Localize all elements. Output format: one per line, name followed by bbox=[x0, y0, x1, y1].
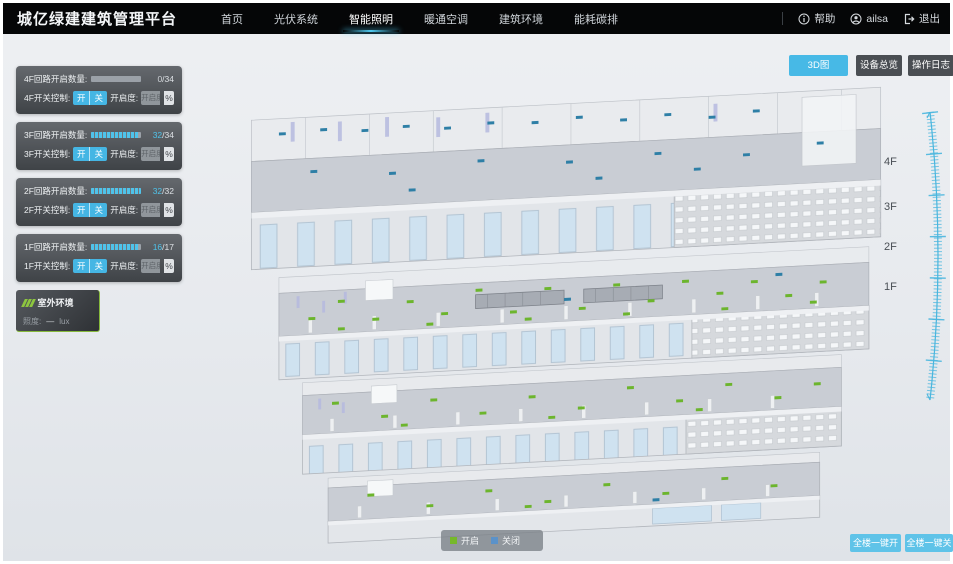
circuit-progress-bar bbox=[91, 244, 141, 250]
circuit-count-label: 4F回路开启数量: bbox=[24, 73, 87, 85]
lights-off-markers-1f bbox=[653, 498, 660, 501]
circuit-progress-bar bbox=[91, 132, 141, 138]
dim-level-label: 开启度: bbox=[110, 204, 138, 216]
switch-on-button[interactable]: 开 bbox=[73, 147, 90, 161]
user-name: ailsa bbox=[866, 13, 888, 25]
switch-group: 开 关 bbox=[73, 259, 107, 273]
logout-label: 退出 bbox=[919, 11, 940, 26]
circuit-progress-bar bbox=[91, 188, 141, 194]
circuit-count-value: 32/32 bbox=[153, 186, 174, 196]
logout-icon bbox=[903, 13, 915, 25]
user-menu[interactable]: ailsa bbox=[850, 13, 888, 25]
device-overview-button[interactable]: 设备总览 bbox=[856, 55, 902, 76]
help-label: 帮助 bbox=[814, 11, 835, 26]
legend-off-label: 关闭 bbox=[502, 534, 520, 547]
floor-4f-model[interactable] bbox=[251, 87, 880, 269]
switch-control-label: 4F开关控制: bbox=[24, 92, 70, 104]
switch-on-button[interactable]: 开 bbox=[73, 203, 90, 217]
help-button[interactable]: 帮助 bbox=[798, 11, 835, 26]
legend-on-item: 开启 bbox=[450, 534, 479, 547]
legend-off-swatch bbox=[491, 537, 498, 544]
percent-apply-button[interactable]: % bbox=[164, 91, 174, 105]
circuit-count-value: 32/34 bbox=[153, 130, 174, 140]
circuit-count-label: 1F回路开启数量: bbox=[24, 241, 87, 253]
nav-item-energy-carbon[interactable]: 能耗碳排 bbox=[572, 2, 620, 36]
legend-off-item: 关闭 bbox=[491, 534, 520, 547]
dim-level-input[interactable]: 开启度 bbox=[141, 259, 160, 273]
nav-item-smart-lighting[interactable]: 智能照明 bbox=[347, 2, 395, 36]
header-divider bbox=[782, 12, 783, 25]
floor-panel-3f: 3F回路开启数量: 32/34 3F开关控制: 开 关 开启度: 开启度 % bbox=[16, 122, 182, 170]
floor-scale-label-3f[interactable]: 3F bbox=[884, 201, 897, 213]
switch-off-button[interactable]: 关 bbox=[90, 203, 107, 217]
legend-on-label: 开启 bbox=[461, 534, 479, 547]
dim-level-label: 开启度: bbox=[110, 260, 138, 272]
percent-apply-button[interactable]: % bbox=[164, 147, 174, 161]
switch-on-button[interactable]: 开 bbox=[73, 91, 90, 105]
lighting-legend: 开启 关闭 bbox=[441, 530, 543, 551]
nav-item-building-env[interactable]: 建筑环境 bbox=[497, 2, 545, 36]
nav-item-hvac[interactable]: 暖通空调 bbox=[422, 2, 470, 36]
main-nav: 首页 光伏系统 智能照明 暖通空调 建筑环境 能耗碳排 bbox=[219, 2, 620, 36]
dim-level-label: 开启度: bbox=[110, 92, 138, 104]
nav-item-pv-system[interactable]: 光伏系统 bbox=[272, 2, 320, 36]
all-floors-off-button[interactable]: 全楼一键关 bbox=[905, 534, 953, 552]
switch-on-button[interactable]: 开 bbox=[73, 259, 90, 273]
switch-off-button[interactable]: 关 bbox=[90, 259, 107, 273]
green-slashes-icon bbox=[23, 299, 34, 307]
legend-on-swatch bbox=[450, 537, 457, 544]
floor-panel-4f: 4F回路开启数量: 0/34 4F开关控制: 开 关 开启度: 开启度 % bbox=[16, 66, 182, 114]
percent-apply-button[interactable]: % bbox=[164, 259, 174, 273]
floor-panel-1f: 1F回路开启数量: 16/17 1F开关控制: 开 关 开启度: 开启度 % bbox=[16, 234, 182, 282]
building-3d-model[interactable] bbox=[218, 75, 918, 545]
switch-control-label: 3F开关控制: bbox=[24, 148, 70, 160]
percent-apply-button[interactable]: % bbox=[164, 203, 174, 217]
illuminance-unit: lux bbox=[59, 317, 69, 326]
switch-control-label: 1F开关控制: bbox=[24, 260, 70, 272]
switch-off-button[interactable]: 关 bbox=[90, 91, 107, 105]
outdoor-env-title: 室外环境 bbox=[38, 296, 74, 309]
switch-group: 开 关 bbox=[73, 147, 107, 161]
circuit-progress-bar bbox=[91, 76, 141, 82]
floor-scale-label-4f[interactable]: 4F bbox=[884, 156, 897, 168]
user-circle-icon bbox=[850, 13, 862, 25]
floor-panel-2f: 2F回路开启数量: 32/32 2F开关控制: 开 关 开启度: 开启度 % bbox=[16, 178, 182, 226]
nav-item-home[interactable]: 首页 bbox=[219, 2, 245, 36]
dim-level-input[interactable]: 开启度 bbox=[141, 203, 160, 217]
circuit-count-label: 2F回路开启数量: bbox=[24, 185, 87, 197]
dim-level-input[interactable]: 开启度 bbox=[141, 147, 160, 161]
switch-control-label: 2F开关控制: bbox=[24, 204, 70, 216]
switch-off-button[interactable]: 关 bbox=[90, 147, 107, 161]
app-window: 城亿绿建建筑管理平台 首页 光伏系统 智能照明 暖通空调 建筑环境 能耗碳排 帮… bbox=[0, 0, 953, 564]
dim-level-input[interactable]: 开启度 bbox=[141, 91, 160, 105]
header-user-area: 帮助 ailsa 退出 bbox=[782, 11, 940, 26]
floor-zoom-scale[interactable] bbox=[906, 106, 953, 406]
floor-scale-label-2f[interactable]: 2F bbox=[884, 241, 897, 253]
all-floors-on-button[interactable]: 全楼一键开 bbox=[850, 534, 901, 552]
view-3d-button[interactable]: 3D图 bbox=[789, 55, 848, 76]
operation-log-button[interactable]: 操作日志 bbox=[908, 55, 953, 76]
app-title: 城亿绿建建筑管理平台 bbox=[17, 8, 177, 29]
circuit-count-value: 16/17 bbox=[153, 242, 174, 252]
switch-group: 开 关 bbox=[73, 203, 107, 217]
top-header: 城亿绿建建筑管理平台 首页 光伏系统 智能照明 暖通空调 建筑环境 能耗碳排 帮… bbox=[3, 3, 950, 34]
floor-scale-label-1f[interactable]: 1F bbox=[884, 281, 897, 293]
dim-level-label: 开启度: bbox=[110, 148, 138, 160]
switch-group: 开 关 bbox=[73, 91, 107, 105]
circuit-count-value: 0/34 bbox=[157, 74, 174, 84]
circuit-count-label: 3F回路开启数量: bbox=[24, 129, 87, 141]
outdoor-env-panel: 室外环境 照度: — lux bbox=[16, 290, 100, 332]
illuminance-metric: 照度: — lux bbox=[23, 316, 92, 327]
info-circle-icon bbox=[798, 13, 810, 25]
illuminance-value: — bbox=[46, 317, 54, 326]
logout-button[interactable]: 退出 bbox=[903, 11, 940, 26]
illuminance-label: 照度: bbox=[23, 316, 41, 327]
